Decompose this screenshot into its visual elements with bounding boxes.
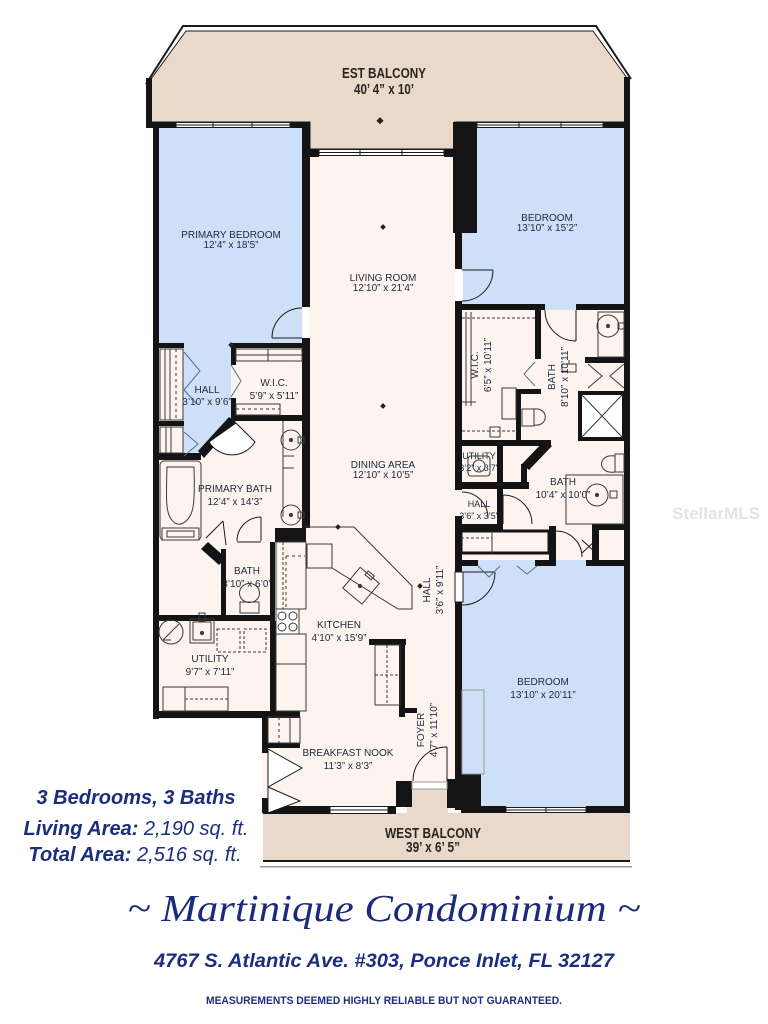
svg-text:4’10” x 15’9”: 4’10” x 15’9”	[311, 633, 366, 644]
svg-text:4’7” x 11’10”: 4’7” x 11’10”	[429, 703, 440, 757]
svg-text:12’4” x 18’5”: 12’4” x 18’5”	[203, 240, 258, 251]
svg-text:BREAKFAST NOOK: BREAKFAST NOOK	[303, 748, 394, 759]
svg-text:6’5” x 10’11”: 6’5” x 10’11”	[483, 338, 494, 392]
svg-text:9’7” x 7’11”: 9’7” x 7’11”	[186, 667, 235, 678]
svg-text:MEASUREMENTS DEEMED HIGHLY REL: MEASUREMENTS DEEMED HIGHLY RELIABLE BUT …	[206, 995, 562, 1007]
svg-text:12’4” x 14’3”: 12’4” x 14’3”	[207, 497, 262, 508]
svg-text:12’10” x 21’4”: 12’10” x 21’4”	[353, 283, 414, 294]
svg-text:UTILITY: UTILITY	[462, 451, 496, 461]
svg-text:~ Martinique Condominium ~: ~ Martinique Condominium ~	[128, 888, 641, 930]
svg-text:HALL: HALL	[468, 499, 491, 509]
svg-text:KITCHEN: KITCHEN	[317, 620, 361, 631]
svg-text:HALL: HALL	[194, 385, 219, 396]
svg-text:10’4” x 10’0”: 10’4” x 10’0”	[535, 490, 590, 501]
svg-text:PRIMARY BATH: PRIMARY BATH	[198, 484, 272, 495]
svg-text:39’ x 6’ 5”: 39’ x 6’ 5”	[406, 840, 460, 856]
svg-text:EST BALCONY: EST BALCONY	[342, 66, 426, 82]
svg-text:Living Area: 2,190 sq. ft.: Living Area: 2,190 sq. ft.	[24, 818, 249, 840]
svg-text:W.I.C.: W.I.C.	[470, 351, 481, 378]
svg-text:5’9” x 5’11”: 5’9” x 5’11”	[250, 391, 299, 402]
svg-text:3’6” x 3’5”: 3’6” x 3’5”	[459, 511, 499, 521]
svg-text:BEDROOM: BEDROOM	[517, 677, 569, 688]
svg-text:12’10” x 10’5”: 12’10” x 10’5”	[353, 470, 414, 481]
svg-text:3’2” x 3’7”: 3’2” x 3’7”	[459, 463, 499, 473]
svg-text:4767 S. Atlantic Ave. #303, Po: 4767 S. Atlantic Ave. #303, Ponce Inlet,…	[153, 951, 616, 972]
svg-text:StellarMLS: StellarMLS	[672, 504, 760, 523]
svg-text:8’10” x 10’11”: 8’10” x 10’11”	[560, 347, 571, 407]
svg-text:FOYER: FOYER	[416, 713, 427, 747]
svg-text:BATH: BATH	[550, 477, 576, 488]
svg-text:13’10” x 15’2”: 13’10” x 15’2”	[517, 223, 578, 234]
svg-text:3’6” x 9’11”: 3’6” x 9’11”	[435, 566, 446, 615]
svg-text:BATH: BATH	[547, 364, 558, 390]
svg-text:BATH: BATH	[234, 566, 260, 577]
svg-text:3’10” x 9’6”: 3’10” x 9’6”	[182, 397, 231, 408]
svg-text:13’10” x 20’11”: 13’10” x 20’11”	[510, 690, 575, 701]
svg-text:11’3” x 8’3”: 11’3” x 8’3”	[324, 761, 373, 772]
svg-text:40’ 4” x 10’: 40’ 4” x 10’	[354, 82, 414, 98]
svg-text:3’10” x 6’0”: 3’10” x 6’0”	[222, 579, 271, 590]
svg-text:UTILITY: UTILITY	[191, 654, 229, 665]
svg-text:Total Area: 2,516 sq. ft.: Total Area: 2,516 sq. ft.	[28, 844, 241, 866]
svg-text:3 Bedrooms, 3 Baths: 3 Bedrooms, 3 Baths	[37, 787, 236, 809]
svg-text:HALL: HALL	[422, 577, 433, 602]
svg-text:W.I.C.: W.I.C.	[260, 378, 287, 389]
